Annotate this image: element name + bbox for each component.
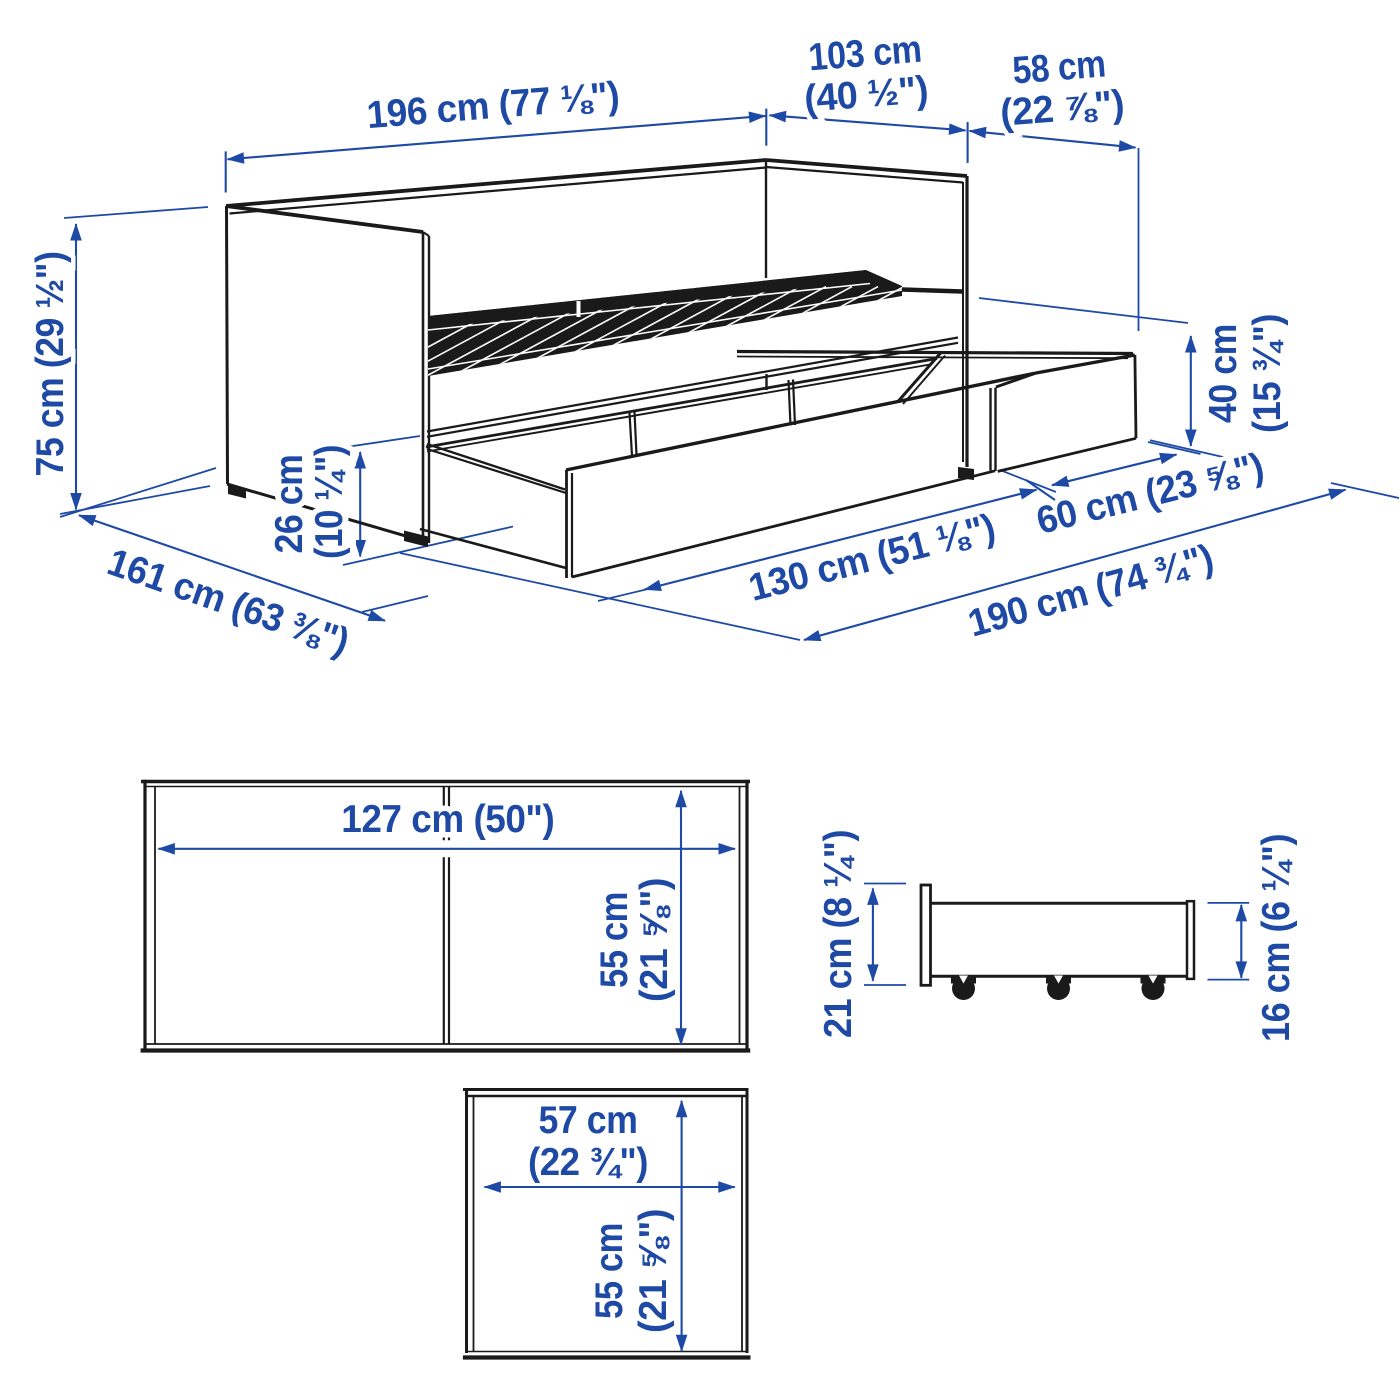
svg-text:40 cm: 40 cm [1202, 324, 1245, 423]
svg-text:55 cm: 55 cm [593, 892, 636, 988]
svg-text:21 cm (8 ¼"): 21 cm (8 ¼") [817, 830, 860, 1038]
svg-text:127 cm (50"): 127 cm (50") [341, 798, 554, 841]
svg-text:(22 ¾"): (22 ¾") [528, 1141, 648, 1184]
svg-text:(21 ⅝"): (21 ⅝") [633, 878, 676, 1002]
svg-text:(10 ¼"): (10 ¼") [308, 445, 351, 559]
svg-text:(15 ¾"): (15 ¾") [1246, 314, 1289, 433]
svg-text:75 cm (29 ½"): 75 cm (29 ½") [29, 252, 72, 477]
svg-text:(21 ⅝"): (21 ⅝") [632, 1209, 675, 1333]
svg-text:55 cm: 55 cm [588, 1223, 631, 1319]
svg-text:57 cm: 57 cm [539, 1099, 638, 1142]
svg-text:16 cm (6 ¼"): 16 cm (6 ¼") [1255, 834, 1298, 1042]
svg-text:26 cm: 26 cm [268, 455, 311, 554]
